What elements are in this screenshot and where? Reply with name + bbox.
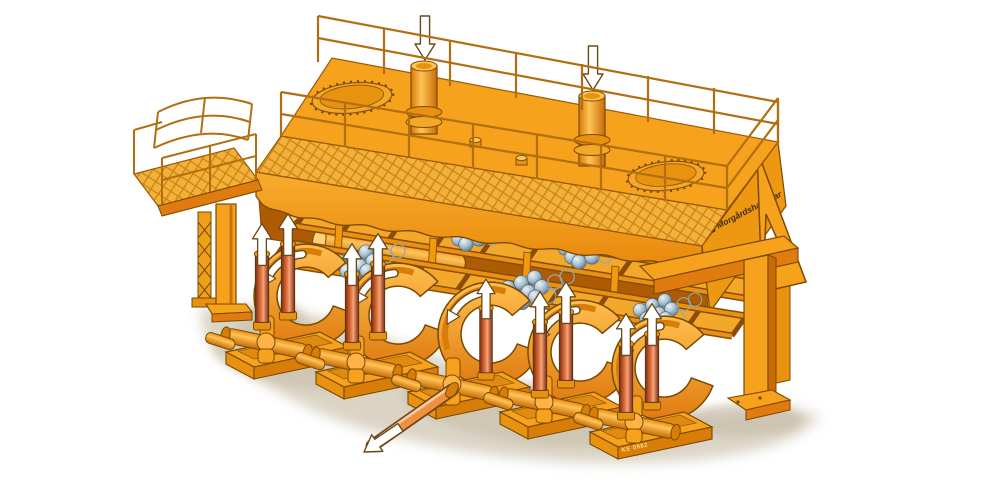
deck-peg (516, 155, 527, 165)
machine-illustration: Morgårdshammar (0, 0, 1000, 500)
machine-illustration-svg: Morgårdshammar (0, 0, 1000, 500)
